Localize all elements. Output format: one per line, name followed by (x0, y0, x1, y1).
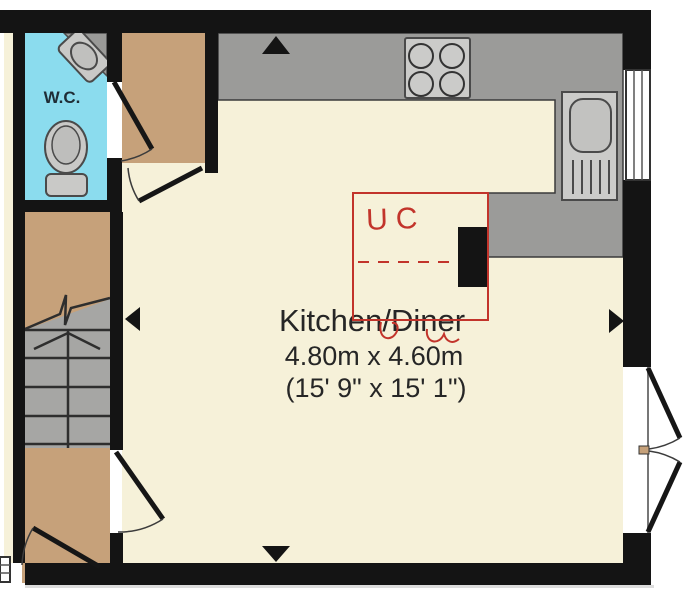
wc-label: W.C. (44, 88, 81, 107)
hob-icon (405, 38, 470, 98)
toilet-icon (45, 121, 87, 196)
wall-wc-right-upper (107, 33, 122, 82)
kitchen-floor-left (122, 163, 218, 563)
adjacent-room-floor (4, 33, 13, 563)
appliance-block (458, 227, 488, 287)
floorplan-canvas: W.C. Kitchen/Diner 4.80m x 4.60m (15' 9"… (0, 0, 697, 600)
wall-right-lower (623, 533, 651, 563)
kitchen-sink-icon (562, 92, 617, 200)
floorplan-svg: W.C. Kitchen/Diner 4.80m x 4.60m (15' 9"… (0, 0, 697, 600)
red-handwritten-note: UC (366, 202, 426, 237)
kitchen-size-metric: 4.80m x 4.60m (285, 341, 464, 371)
wall-wc-right-lower (107, 158, 122, 212)
upper-hall-floor (122, 33, 205, 163)
wall-right-mid (623, 180, 651, 367)
wall-wc-bottom (13, 200, 122, 212)
wall-right-upper (623, 33, 651, 70)
wall-stair-right-lower (110, 533, 123, 563)
wall-stair-right (110, 212, 123, 450)
patio-door-meeting-stub (639, 446, 649, 454)
wall-left (13, 33, 25, 563)
wall-shadow (25, 585, 654, 588)
window-right-icon (626, 70, 650, 180)
kitchen-size-imperial: (15' 9" x 15' 1") (285, 373, 466, 403)
wall-top (0, 10, 651, 33)
wall-bottom (25, 563, 651, 585)
wall-hall-right (205, 33, 218, 173)
window-bottom-left-icon (0, 557, 10, 582)
